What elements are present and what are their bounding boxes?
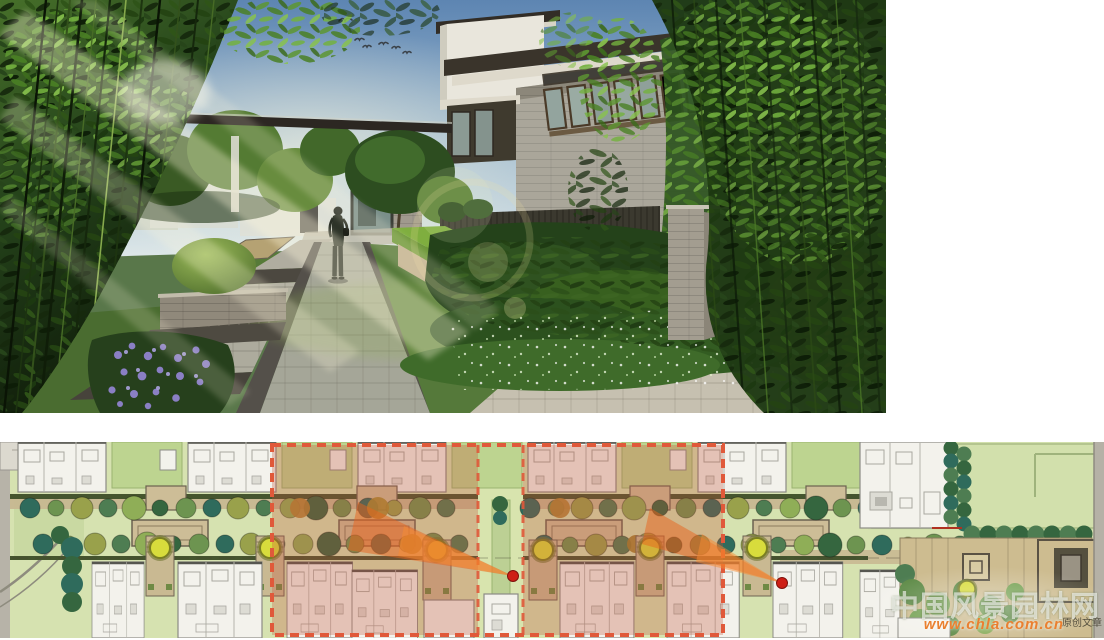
park-lawn [860,442,1104,543]
perspective-rendering [0,0,886,413]
viewpoint-dot-right [777,578,788,589]
rendering-graphic [0,0,886,413]
sun-spot [120,60,210,124]
presentation-board: 中国风景园林网 www.chla.com.cn 原创文章 [0,0,1104,640]
watermark-suffix: 原创文章 [1062,614,1102,629]
viewpoint-dot-left [508,571,519,582]
tree-column-park [944,442,972,532]
highlight-zone [272,445,788,635]
house-footprint [484,594,518,638]
big-house-footprint [860,442,948,528]
watermark-url: www.chla.com.cn [924,616,1064,633]
site-plan: 中国风景园林网 www.chla.com.cn 原创文章 [0,442,1104,638]
